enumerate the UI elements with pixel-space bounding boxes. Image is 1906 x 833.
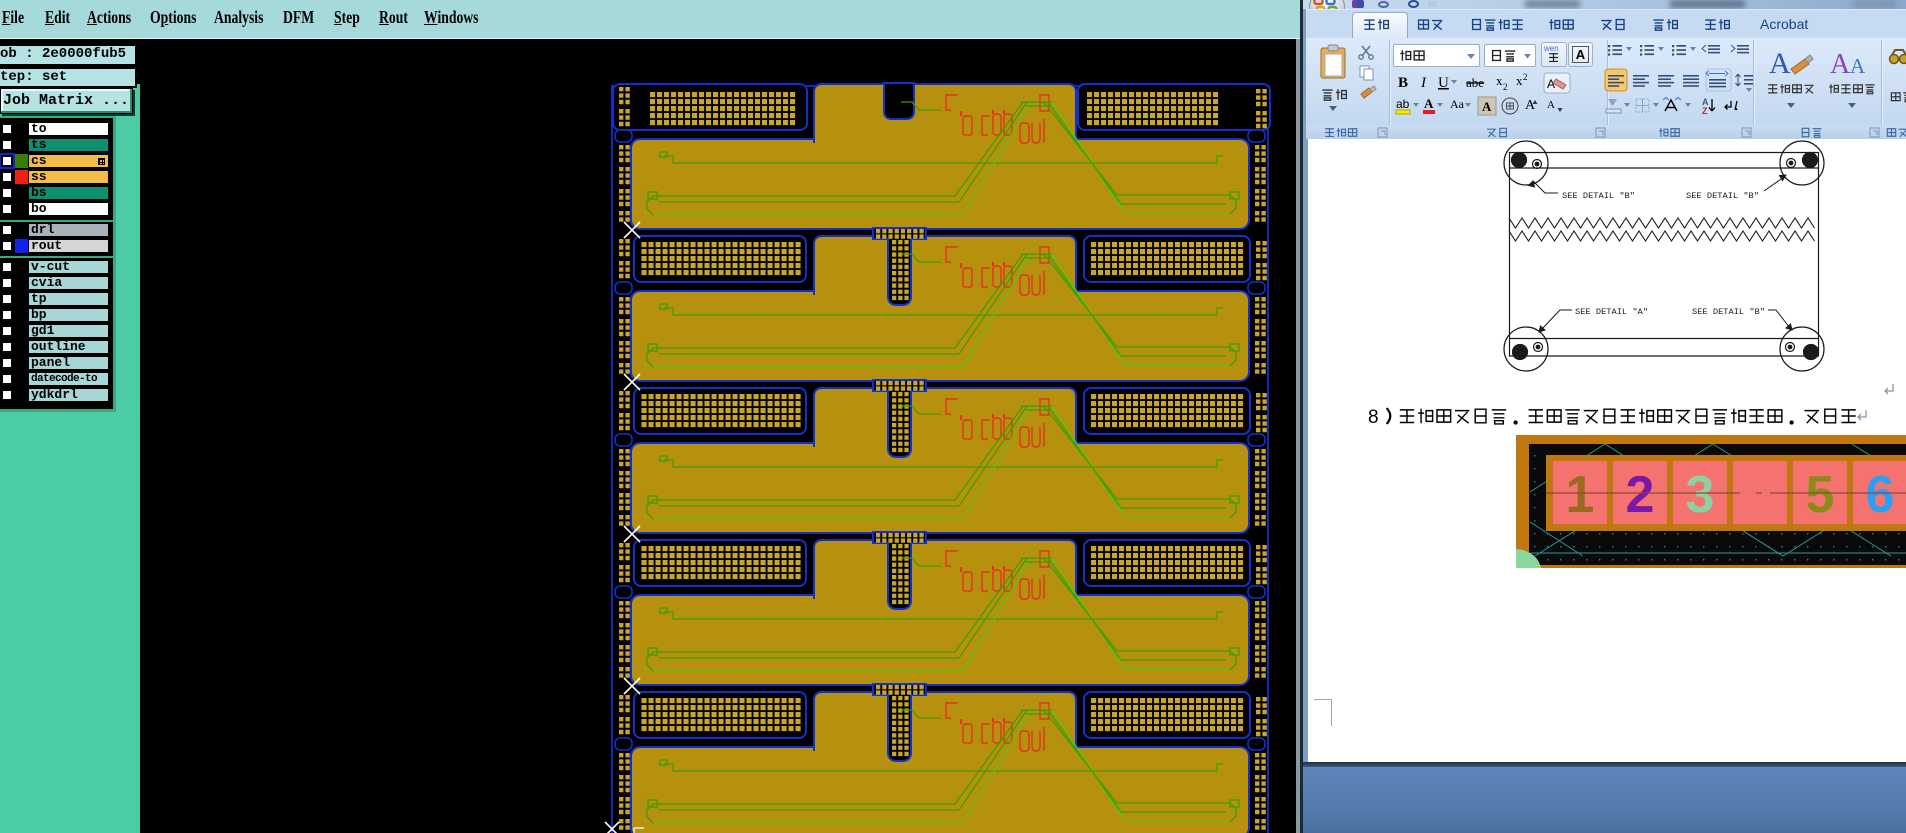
svg-text:U: U bbox=[1438, 75, 1449, 91]
svg-text:A: A bbox=[1547, 99, 1555, 111]
svg-text:Z: Z bbox=[1702, 106, 1708, 116]
svg-text:2: 2 bbox=[1503, 82, 1508, 92]
svg-text:Acrobat: Acrobat bbox=[1760, 16, 1808, 32]
svg-text:A: A bbox=[1850, 54, 1866, 78]
svg-text:abe: abe bbox=[1466, 75, 1484, 90]
svg-text:A: A bbox=[1482, 99, 1492, 114]
svg-text:2: 2 bbox=[1523, 72, 1528, 82]
svg-text:A: A bbox=[1769, 47, 1791, 80]
svg-text:A: A bbox=[1830, 49, 1851, 80]
svg-text:I: I bbox=[1420, 75, 1427, 91]
svg-text:ab: ab bbox=[1396, 97, 1410, 111]
svg-text:A: A bbox=[1424, 96, 1434, 111]
svg-text:B: B bbox=[1398, 75, 1408, 91]
svg-text:A: A bbox=[1525, 98, 1536, 113]
svg-text:wen: wen bbox=[1543, 44, 1559, 53]
svg-text:Aa: Aa bbox=[1450, 97, 1465, 111]
svg-text:x: x bbox=[1516, 73, 1523, 88]
svg-text:x: x bbox=[1496, 73, 1503, 88]
